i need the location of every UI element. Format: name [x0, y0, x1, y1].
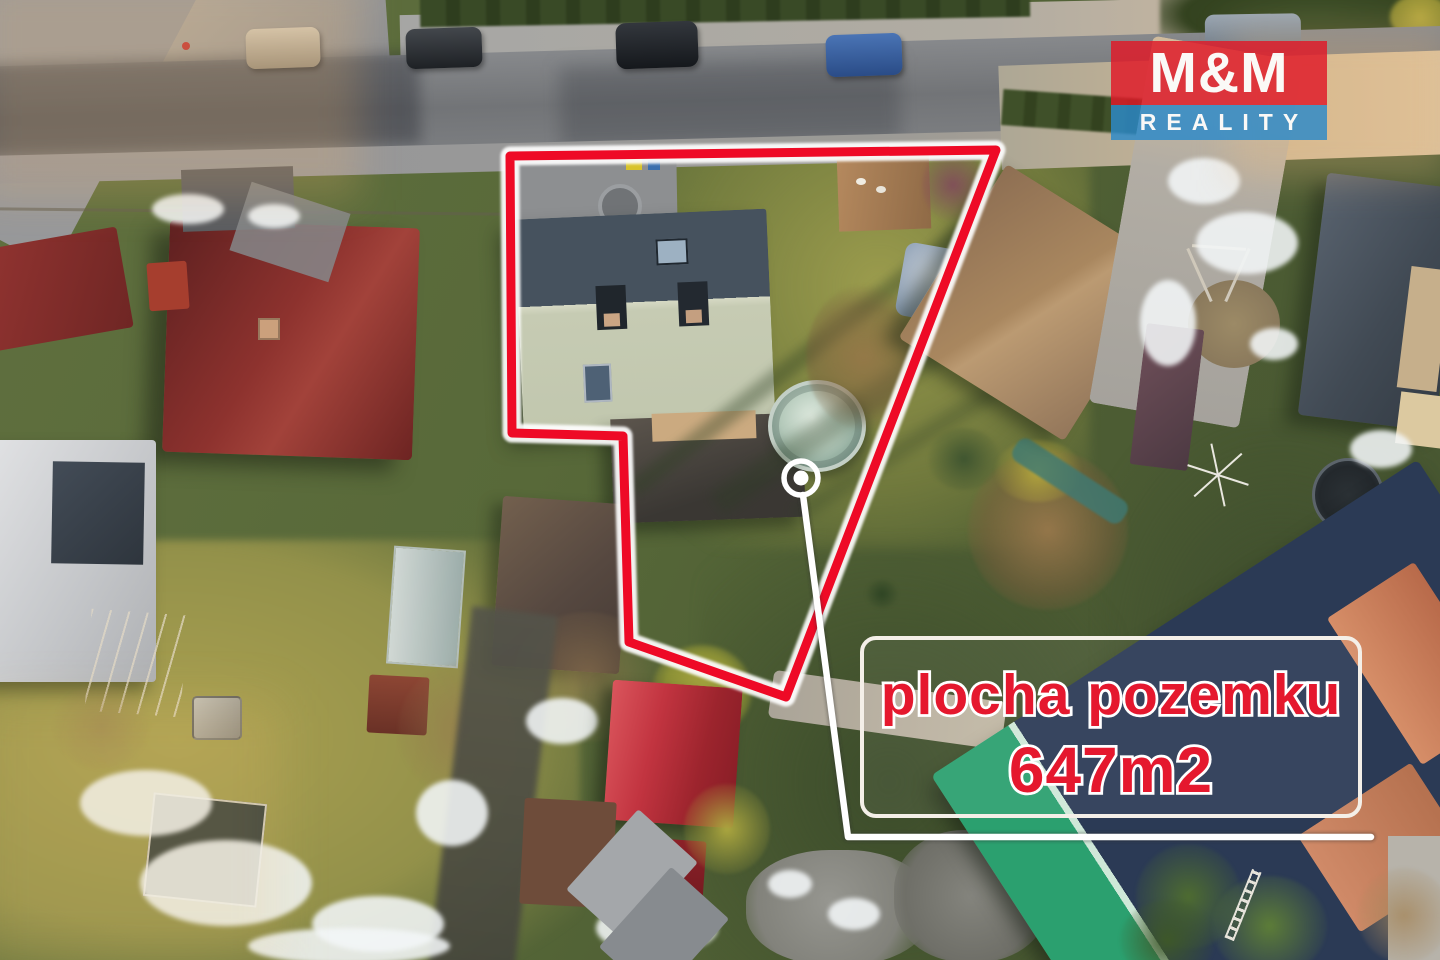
plot-outline-overlay: plocha pozemku647m2	[0, 0, 1440, 960]
plot-area-label-line1: plocha pozemku	[881, 663, 1342, 727]
agency-logo: M&M REALITY	[1111, 41, 1327, 140]
logo-mm-text: M&M	[1149, 40, 1288, 106]
logo-mm-banner: M&M	[1111, 41, 1327, 105]
aerial-photo: plocha pozemku647m2 M&M REALITY	[0, 0, 1440, 960]
logo-reality-text: REALITY	[1140, 109, 1308, 136]
plot-boundary-glow	[510, 150, 996, 697]
location-marker-dot	[794, 471, 809, 486]
plot-area-label-line2: 647m2	[1009, 734, 1213, 806]
plot-boundary-line	[510, 150, 996, 697]
logo-reality-banner: REALITY	[1111, 105, 1327, 140]
